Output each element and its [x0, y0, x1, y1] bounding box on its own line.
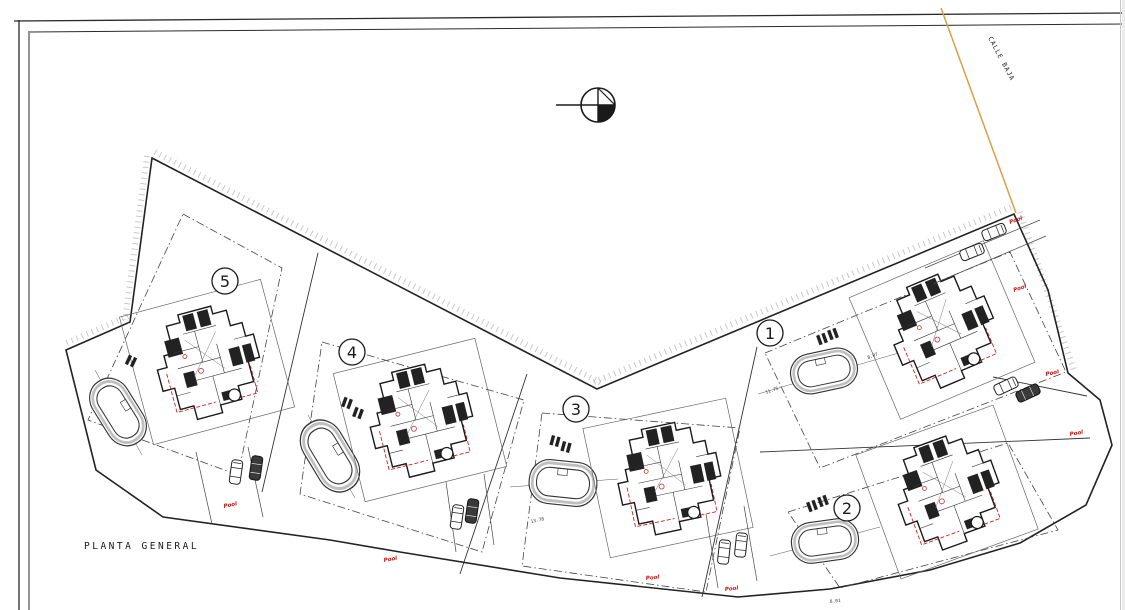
svg-text:4: 4: [347, 343, 357, 362]
plot-1-number-badge: 1: [757, 320, 783, 346]
svg-text:Pool: Pool: [646, 575, 660, 582]
car: [465, 498, 479, 523]
page-edge: [1121, 0, 1125, 610]
motorbike: [560, 441, 571, 453]
car: [229, 459, 243, 484]
car: [450, 504, 464, 529]
svg-text:2: 2: [842, 499, 852, 518]
car: [1015, 383, 1041, 403]
plot-1: 1: [757, 220, 1046, 419]
svg-text:5: 5: [220, 272, 230, 291]
plot-3-number-badge: 3: [563, 396, 589, 422]
car: [993, 376, 1019, 396]
svg-text:11.75: 11.75: [765, 386, 780, 396]
site-plan-page: CALLE BAJA: [0, 0, 1125, 610]
motorbike: [549, 435, 560, 447]
plot-4: 4: [292, 338, 507, 552]
plot-5: 5: [82, 268, 295, 524]
svg-text:Pool: Pool: [1009, 216, 1024, 226]
villa-plot-1: [849, 241, 1035, 420]
car: [717, 539, 730, 564]
svg-text:Pool: Pool: [1069, 430, 1083, 438]
svg-text:13.78: 13.78: [530, 516, 545, 525]
svg-text:Pool: Pool: [1045, 369, 1060, 378]
svg-text:Pool: Pool: [1013, 284, 1028, 294]
motorbike: [352, 407, 364, 419]
svg-text:Pool: Pool: [725, 586, 739, 593]
svg-text:3: 3: [571, 400, 581, 419]
motorbike: [827, 328, 839, 340]
plot-3: 3: [527, 396, 757, 588]
drawing-title: PLANTA GENERAL: [84, 541, 199, 552]
car: [981, 222, 1007, 241]
pool-plot-2: [789, 516, 861, 566]
car: [249, 455, 263, 480]
villa-plot-2: [856, 405, 1038, 579]
north-arrow-icon: [556, 88, 615, 122]
svg-text:Pool: Pool: [383, 556, 397, 564]
pool-plot-5: [82, 371, 154, 454]
pool-plot-4: [292, 412, 368, 499]
motorbike: [806, 500, 818, 512]
svg-text:1: 1: [765, 324, 775, 343]
motorbike: [816, 333, 828, 345]
pool-plot-3: [527, 458, 599, 509]
plot-5-number-badge: 5: [212, 268, 238, 294]
site-plan-drawing: CALLE BAJA: [0, 0, 1125, 610]
car: [734, 532, 747, 557]
motorbike: [341, 397, 353, 409]
svg-text:Pool: Pool: [223, 501, 238, 510]
pool-plot-1: [787, 344, 861, 397]
street-label: CALLE BAJA: [986, 35, 1016, 82]
plot-4-number-badge: 4: [339, 339, 365, 365]
plot-2-number-badge: 2: [834, 495, 860, 521]
road-edge-line: [941, 8, 1016, 213]
svg-text:8.01: 8.01: [830, 598, 842, 605]
